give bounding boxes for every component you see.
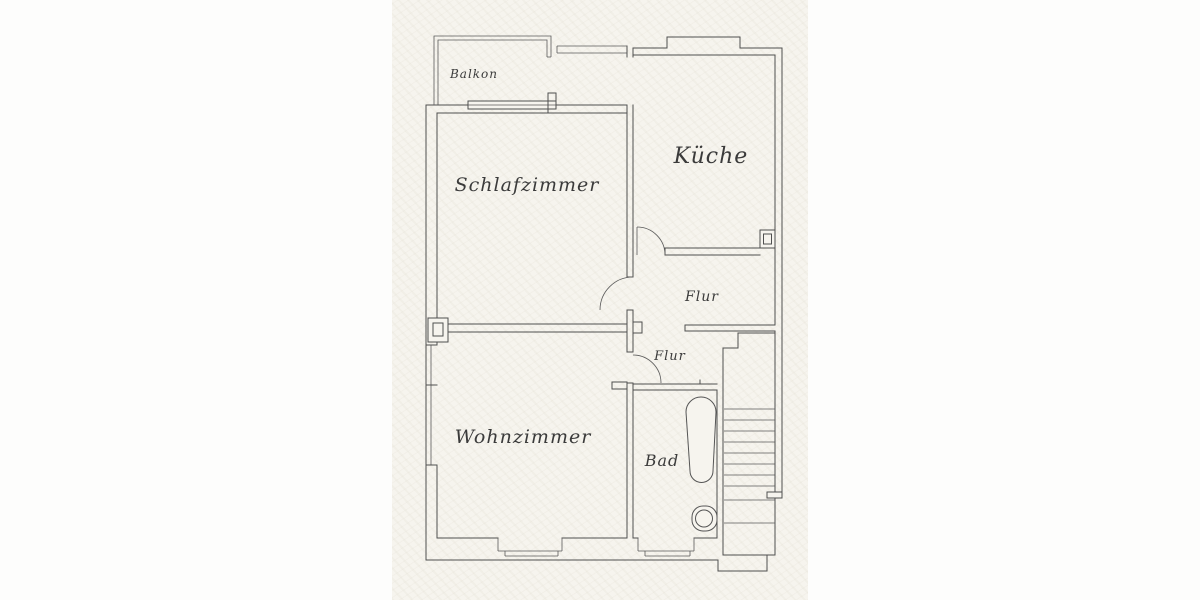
room-label-schlafzimmer: Schlafzimmer (455, 174, 601, 196)
room-label-wohnzimmer: Wohnzimmer (455, 426, 593, 448)
window-wohnzimmer (498, 538, 562, 556)
window-left-wall (426, 345, 437, 465)
window-balcony (468, 101, 556, 109)
stair-treads (724, 409, 775, 523)
door-arc-schlafzimmer (600, 277, 633, 310)
divider-wall (428, 277, 642, 352)
room-label-bad: Bad (644, 451, 680, 470)
room-label-flur-lower: Flur (653, 349, 686, 364)
wall-foot (767, 492, 782, 498)
exterior-walls (426, 48, 782, 571)
bathtub (686, 397, 716, 483)
room-label-kueche: Küche (673, 144, 749, 169)
staircase (723, 333, 775, 555)
wall-pillar-left (428, 318, 448, 342)
floor-plan-svg: Balkon Schlafzimmer Küche Flur Flur Wohn… (0, 0, 1200, 600)
door-arc-kueche (637, 227, 665, 255)
room-label-balkon: Balkon (449, 67, 498, 81)
window-bad (638, 538, 694, 556)
room-label-flur-upper: Flur (684, 289, 719, 305)
toilet (692, 506, 717, 531)
wall-pillar-right (760, 230, 775, 248)
scanned-page: Balkon Schlafzimmer Küche Flur Flur Wohn… (0, 0, 1200, 600)
